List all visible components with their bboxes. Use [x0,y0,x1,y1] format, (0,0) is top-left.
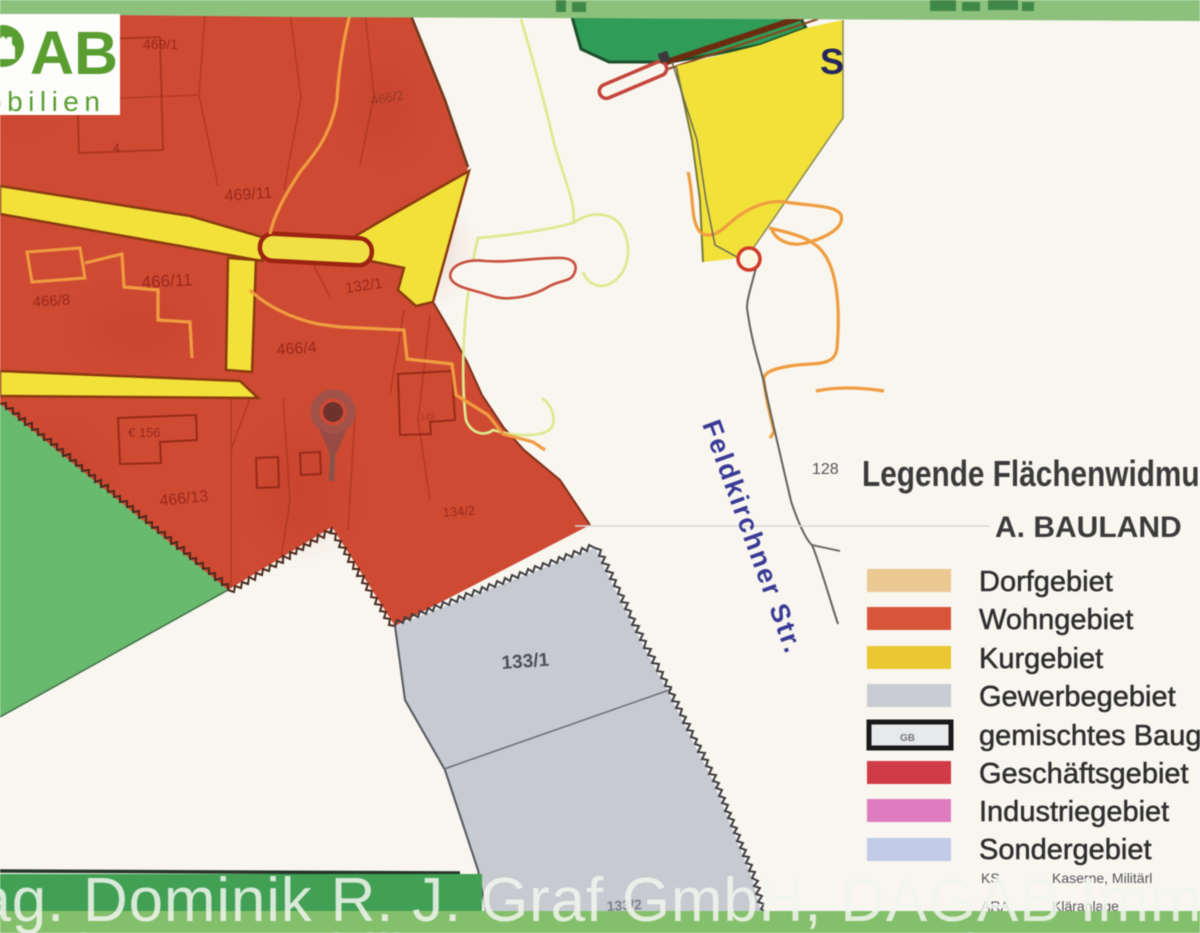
svg-text:143: 143 [420,412,435,422]
svg-text:A. BAULAND: A. BAULAND [995,511,1182,544]
svg-text:Dorfgebiet: Dorfgebiet [979,566,1113,598]
svg-text:obilien: obilien [0,86,105,117]
svg-text:469/11: 469/11 [224,185,273,205]
svg-text:466/4: 466/4 [276,339,317,359]
svg-text:GB: GB [900,733,915,744]
svg-text:4: 4 [113,141,120,155]
svg-text:Industriegebiet: Industriegebiet [979,796,1169,828]
svg-text:134/2: 134/2 [442,503,476,520]
svg-text:Geschäftsgebiet: Geschäftsgebiet [979,758,1189,790]
svg-text:gemischtes Bauge: gemischtes Bauge [979,720,1200,752]
svg-text:Wohngebiet: Wohngebiet [979,604,1133,636]
svg-text:128: 128 [812,461,839,478]
svg-text:Legende Flächenwidmung: Legende Flächenwidmung [862,453,1200,494]
svg-text:Sondergebiet: Sondergebiet [979,834,1152,866]
svg-text:133/1: 133/1 [501,650,550,674]
svg-text:469/1: 469/1 [143,36,178,52]
svg-text:Kurgebiet: Kurgebiet [979,643,1103,675]
svg-text:466/11: 466/11 [141,270,193,292]
svg-text:AB: AB [30,19,118,87]
svg-text:466/8: 466/8 [32,291,71,311]
svg-text:S: S [820,41,844,82]
svg-text:Ihre Immobilien GIS Beratung G: Ihre Immobilien GIS Beratung GmbH [60,922,1040,933]
svg-text:€ 156: € 156 [128,425,161,440]
svg-text:Gewerbegebiet: Gewerbegebiet [979,681,1176,713]
